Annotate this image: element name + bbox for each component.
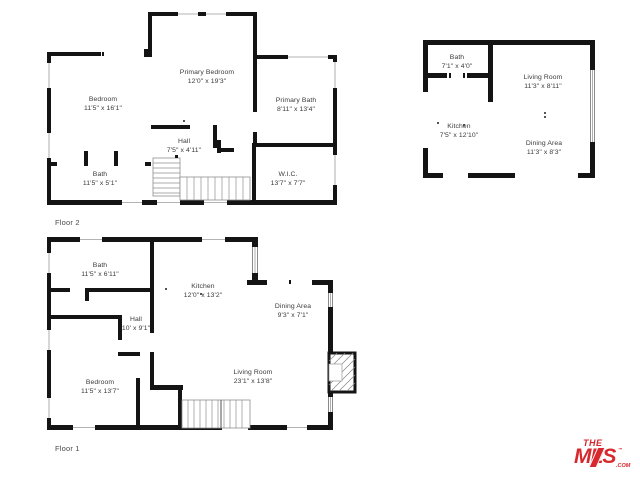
room-label-floor2-hall: Hall 7'5" x 4'11" bbox=[167, 138, 201, 156]
room-label-floor2-wic: W.I.C. 13'7" x 7'7" bbox=[271, 171, 306, 189]
room-label-floor1-dining-area: Dining Area 9'3" x 7'1" bbox=[275, 303, 311, 321]
room-label-floor1-kitchen: Kitchen 12'0" x 13'2" bbox=[184, 283, 223, 301]
logo-trademark-symbol: ™ bbox=[618, 447, 623, 452]
room-label-floor2-primary-bedroom: Primary Bedroom 12'0" x 19'3" bbox=[180, 69, 234, 87]
themls-logo: THE MLS ™ .COM bbox=[574, 439, 632, 475]
room-label-floor2-bedroom: Bedroom 11'5" x 16'1" bbox=[84, 96, 122, 114]
room-label-floor2-primary-bath: Primary Bath 8'11" x 13'4" bbox=[276, 97, 316, 115]
room-label-floor1-hall: Hall 10' x 9'1" bbox=[122, 316, 150, 334]
room-label-floor1-bedroom: Bedroom 11'5" x 13'7" bbox=[81, 379, 119, 397]
floor1-caption: Floor 1 bbox=[55, 444, 80, 453]
room-label-floor1-bath: Bath 11'5" x 6'11" bbox=[81, 262, 119, 280]
floorplan-page: Bedroom 11'5" x 16'1" Primary Bedroom 12… bbox=[0, 0, 640, 480]
logo-com-text: .COM bbox=[616, 463, 630, 469]
floor2-plan bbox=[40, 5, 350, 230]
room-label-floor1-living-room: Living Room 23'1" x 13'8" bbox=[234, 369, 273, 387]
room-label-unit-living-room: Living Room 11'3" x 8'11" bbox=[524, 74, 563, 92]
room-label-floor2-bath: Bath 11'5" x 5'1" bbox=[83, 171, 117, 189]
floor2-caption: Floor 2 bbox=[55, 218, 80, 227]
room-label-unit-dining-area: Dining Area 11'3" x 8'3" bbox=[526, 140, 562, 158]
room-label-unit-kitchen: Kitchen 7'5" x 12'10" bbox=[440, 123, 479, 141]
room-label-unit-bath: Bath 7'1" x 4'0" bbox=[442, 54, 473, 72]
